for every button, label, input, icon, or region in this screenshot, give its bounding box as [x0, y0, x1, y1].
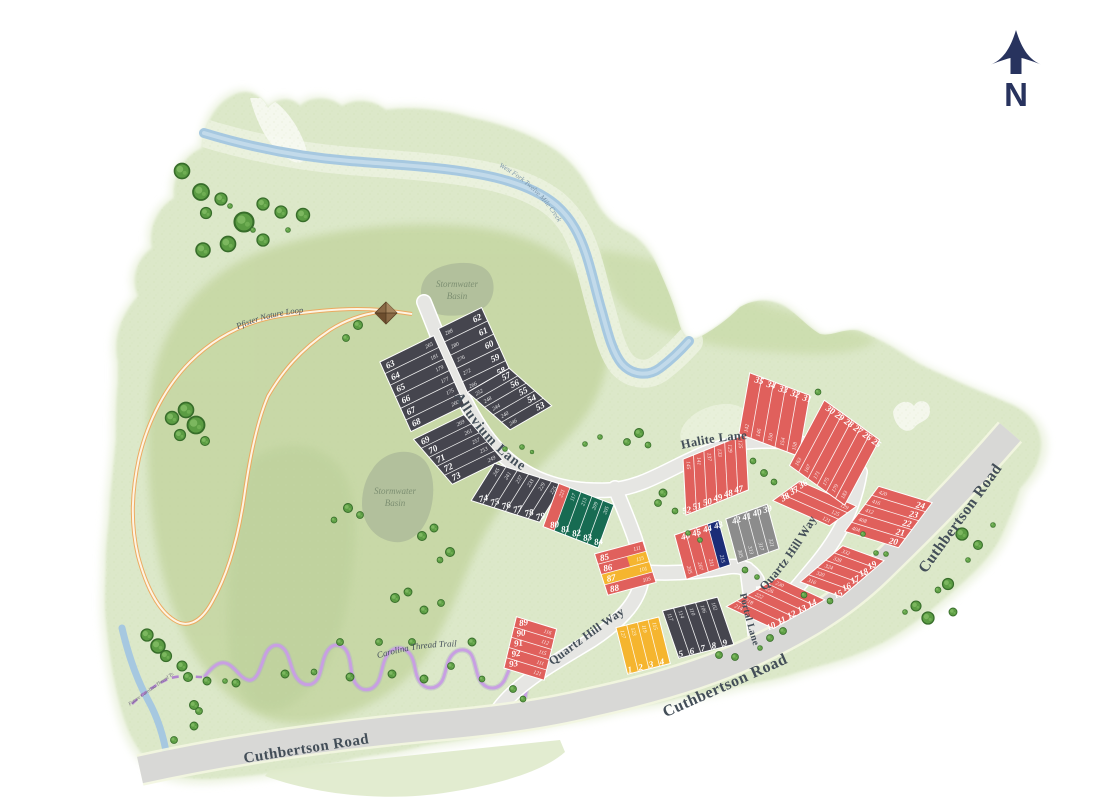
svg-text:154: 154 [779, 437, 787, 447]
svg-text:N: N [1004, 76, 1028, 113]
svg-text:133: 133 [716, 448, 722, 457]
svg-text:145: 145 [685, 461, 692, 470]
svg-text:146: 146 [755, 428, 763, 438]
svg-text:Stormwater: Stormwater [436, 279, 479, 289]
svg-text:81: 81 [560, 523, 570, 534]
svg-text:91: 91 [513, 637, 523, 648]
svg-text:137: 137 [705, 453, 711, 462]
svg-text:141: 141 [695, 457, 702, 466]
svg-text:129: 129 [726, 444, 732, 453]
svg-text:Stormwater: Stormwater [374, 486, 417, 496]
svg-text:Basin: Basin [385, 498, 406, 508]
svg-text:Basin: Basin [447, 291, 468, 301]
